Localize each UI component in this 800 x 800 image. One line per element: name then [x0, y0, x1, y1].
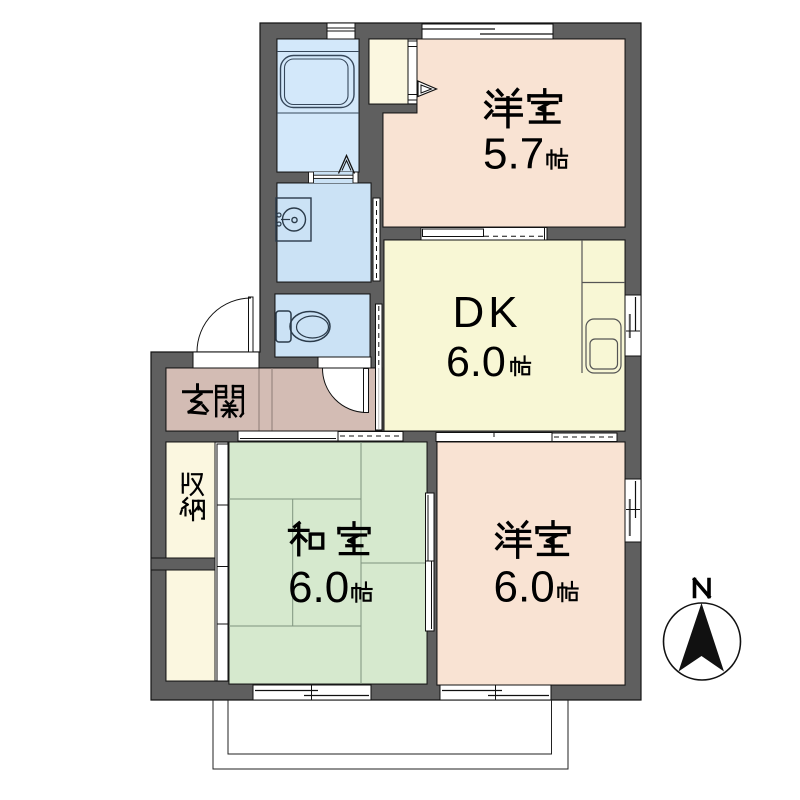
- svg-text:6.0: 6.0: [288, 563, 349, 612]
- svg-text:5.7: 5.7: [483, 130, 544, 179]
- svg-text:6.0: 6.0: [446, 338, 506, 386]
- svg-text:6.0: 6.0: [494, 563, 555, 612]
- svg-text:DK: DK: [453, 288, 522, 337]
